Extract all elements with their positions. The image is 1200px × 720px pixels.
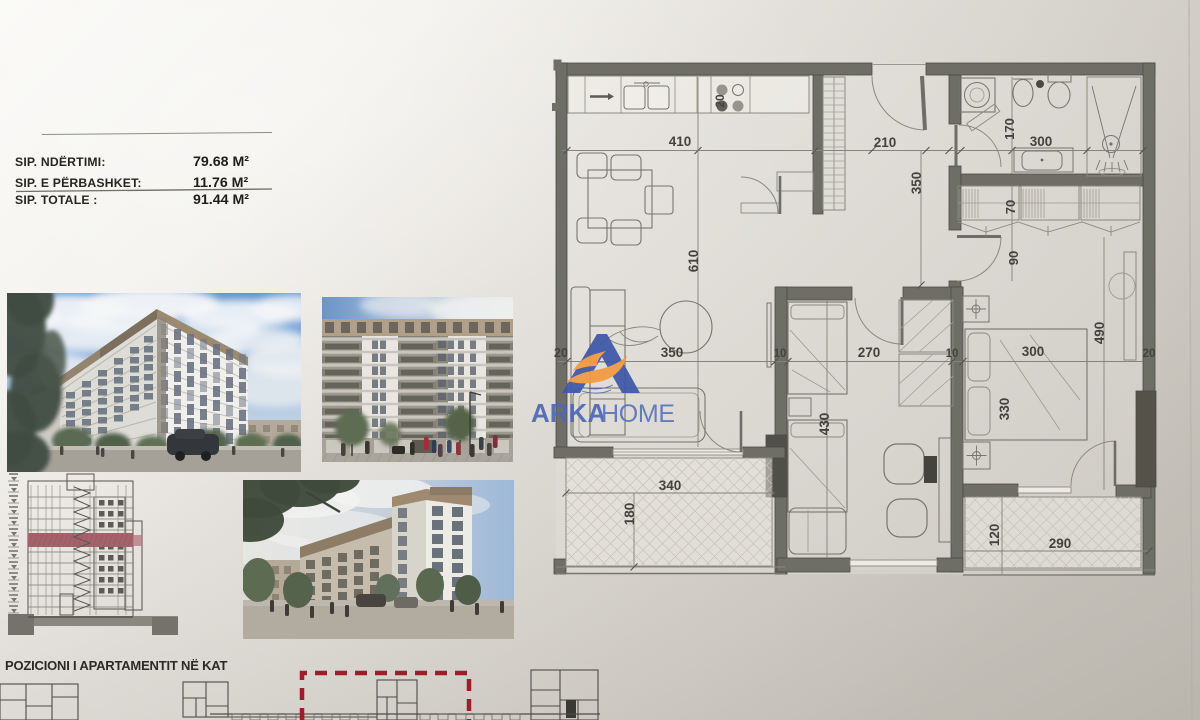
- svg-text:290: 290: [1049, 536, 1072, 551]
- svg-text:490: 490: [1092, 322, 1107, 345]
- svg-text:70: 70: [1003, 200, 1018, 214]
- svg-text:350: 350: [661, 345, 684, 360]
- svg-text:11.76 M²: 11.76 M²: [193, 175, 248, 191]
- svg-text:210: 210: [874, 135, 897, 150]
- svg-text:SIP. NDËRTIMI:: SIP. NDËRTIMI:: [15, 154, 106, 169]
- svg-text:340: 340: [659, 478, 682, 493]
- svg-text:20: 20: [1143, 348, 1156, 360]
- svg-text:POZICIONI I APARTAMENTIT NË KA: POZICIONI I APARTAMENTIT NË KAT: [5, 658, 228, 673]
- svg-text:20: 20: [554, 346, 568, 360]
- svg-text:610: 610: [686, 250, 701, 273]
- svg-text:300: 300: [1022, 344, 1045, 359]
- svg-text:90: 90: [1006, 251, 1021, 265]
- svg-text:10: 10: [774, 348, 787, 360]
- svg-text:120: 120: [987, 524, 1002, 547]
- svg-text:SIP. TOTALE :: SIP. TOTALE :: [15, 193, 98, 207]
- svg-text:350: 350: [909, 172, 924, 195]
- svg-text:170: 170: [1002, 118, 1017, 140]
- svg-text:10: 10: [946, 348, 959, 360]
- svg-text:79.68 M²: 79.68 M²: [193, 154, 249, 170]
- svg-text:HOME: HOME: [601, 400, 675, 428]
- svg-text:410: 410: [669, 134, 692, 149]
- svg-text:ARKA: ARKA: [531, 398, 606, 428]
- svg-text:SIP. E PËRBASHKET:: SIP. E PËRBASHKET:: [15, 175, 142, 190]
- svg-text:300: 300: [1030, 134, 1053, 149]
- svg-text:91.44 M²: 91.44 M²: [193, 192, 249, 208]
- svg-text:270: 270: [858, 345, 881, 360]
- svg-text:20: 20: [713, 94, 727, 108]
- svg-text:330: 330: [997, 398, 1012, 421]
- svg-text:430: 430: [817, 413, 832, 436]
- svg-text:180: 180: [622, 503, 637, 526]
